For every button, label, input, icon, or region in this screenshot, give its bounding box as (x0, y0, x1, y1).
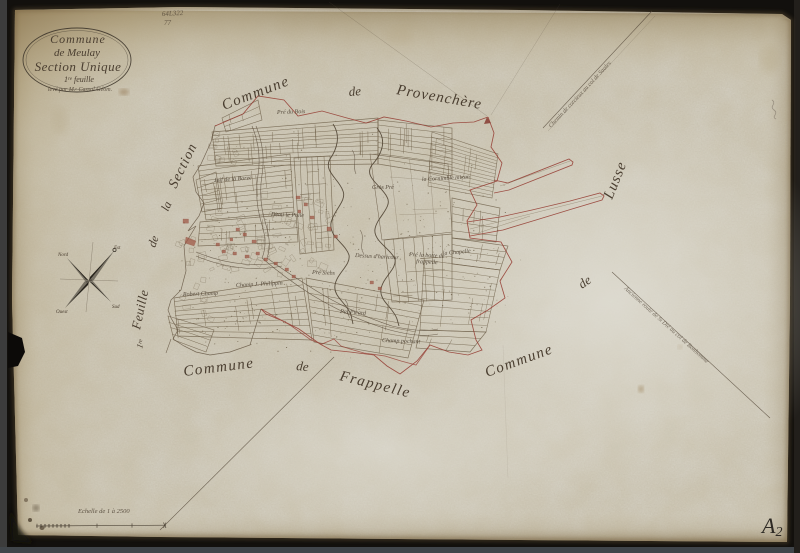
svg-text:Sud: Sud (112, 305, 120, 310)
svg-text:levé par M.r Cassal Géom.: levé par M.r Cassal Géom. (48, 86, 112, 93)
svg-text:Commune: Commune (50, 32, 106, 46)
svg-text:77: 77 (164, 19, 172, 27)
svg-text:Section Unique: Section Unique (35, 59, 122, 74)
svg-text:de: de (348, 83, 362, 99)
svg-text:Pré du Bois: Pré du Bois (276, 109, 306, 116)
svg-text:frappelle: frappelle (416, 258, 438, 266)
svg-text:Nord: Nord (57, 253, 69, 258)
svg-text:Est: Est (113, 246, 121, 251)
svg-text:Pré Siebs: Pré Siebs (311, 270, 336, 277)
svg-text:de: de (296, 358, 310, 374)
svg-text:Ouest: Ouest (56, 310, 68, 315)
svg-text:Demi le Poile: Demi le Poile (270, 212, 305, 219)
svg-text:de Meulay: de Meulay (54, 47, 100, 59)
svg-text:64L322: 64L322 (162, 9, 184, 18)
svg-text:Robert Champ: Robert Champ (182, 291, 218, 298)
svg-text:Echelle de 1 à 2500: Echelle de 1 à 2500 (77, 508, 130, 515)
svg-text:Gros Pré: Gros Pré (372, 185, 394, 191)
